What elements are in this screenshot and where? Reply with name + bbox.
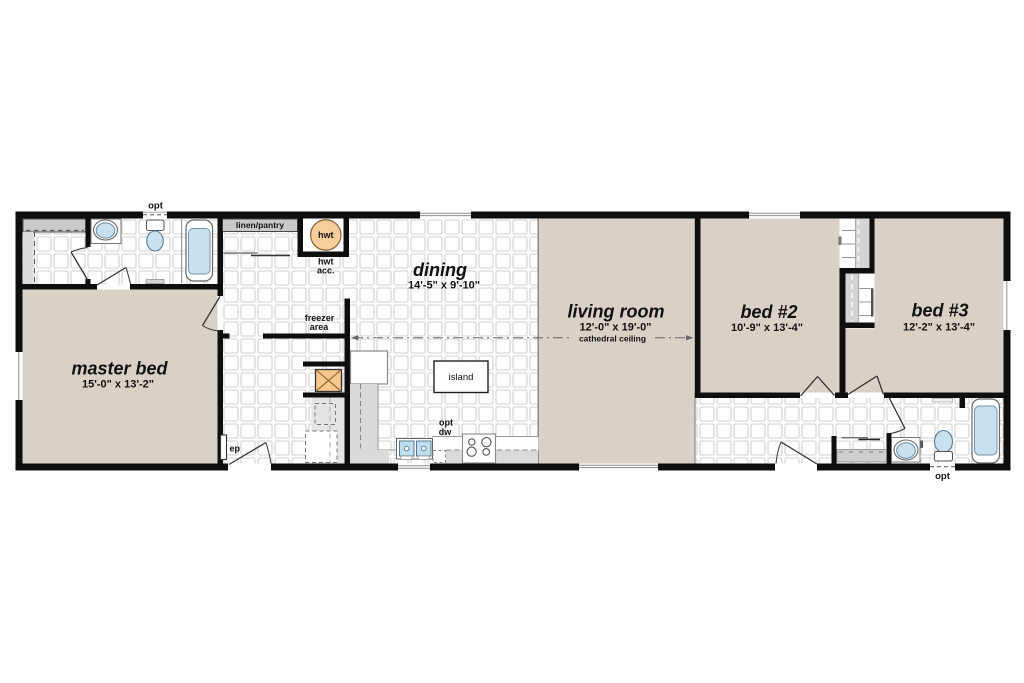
svg-text:14'-5" x 9'-10": 14'-5" x 9'-10" <box>408 280 480 292</box>
svg-text:acc.: acc. <box>317 265 335 275</box>
svg-text:master bed: master bed <box>71 359 168 379</box>
svg-text:living room: living room <box>567 302 664 322</box>
svg-text:opt: opt <box>935 471 951 482</box>
svg-text:bed #2: bed #2 <box>740 302 797 322</box>
svg-text:dw: dw <box>439 427 452 437</box>
svg-text:12'-0" x 19'-0": 12'-0" x 19'-0" <box>580 322 652 334</box>
svg-text:15'-0" x 13'-2": 15'-0" x 13'-2" <box>82 379 154 391</box>
svg-text:bed #3: bed #3 <box>911 301 968 321</box>
svg-text:opt: opt <box>439 418 453 428</box>
svg-text:10'-9" x 13'-4": 10'-9" x 13'-4" <box>731 322 803 334</box>
svg-text:linen/pantry: linen/pantry <box>236 220 284 230</box>
svg-text:hwt: hwt <box>318 230 334 240</box>
svg-text:12'-2" x 13'-4": 12'-2" x 13'-4" <box>903 322 975 334</box>
svg-text:cathedral ceiling: cathedral ceiling <box>579 334 646 344</box>
svg-text:dining: dining <box>413 260 467 280</box>
svg-text:area: area <box>310 322 330 332</box>
svg-text:island: island <box>449 372 474 383</box>
svg-text:opt: opt <box>148 201 164 212</box>
svg-text:ep: ep <box>230 444 241 454</box>
